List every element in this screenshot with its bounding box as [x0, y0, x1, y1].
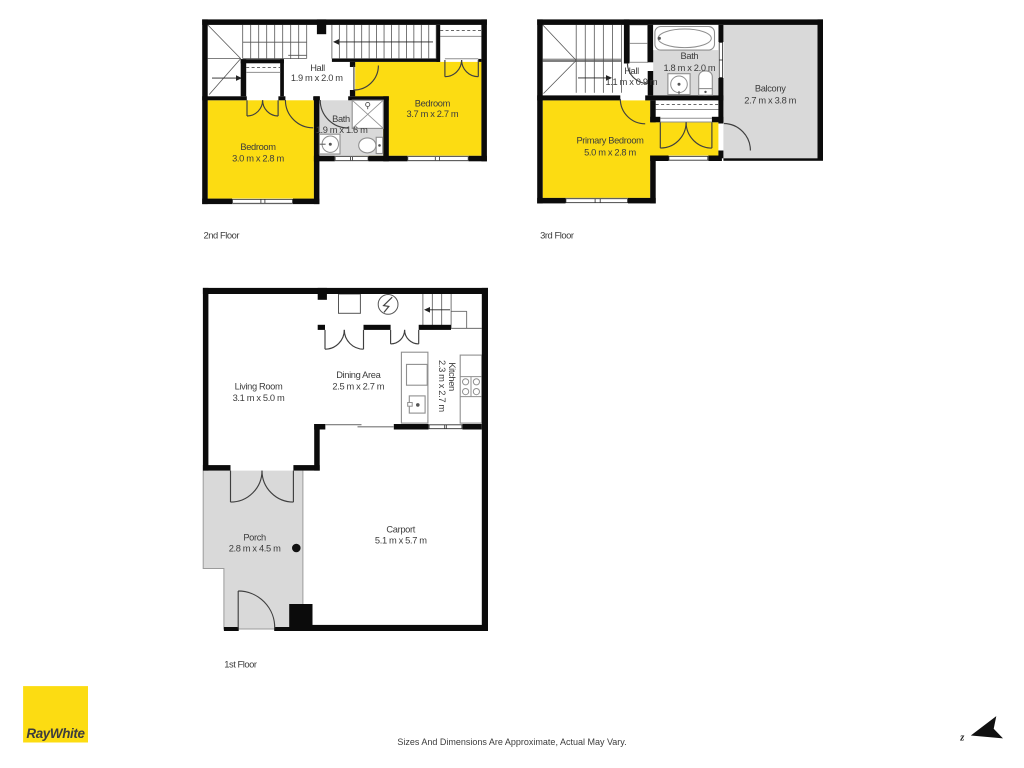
- svg-text:Primary Bedroom: Primary Bedroom: [576, 136, 644, 146]
- svg-text:Sizes And Dimensions Are Appro: Sizes And Dimensions Are Approximate, Ac…: [397, 737, 626, 747]
- svg-text:1.1 m x 0.9 m: 1.1 m x 0.9 m: [606, 77, 658, 87]
- svg-text:Bath: Bath: [332, 114, 350, 124]
- svg-text:Bedroom: Bedroom: [415, 99, 451, 109]
- svg-text:2.3 m x 2.7 m: 2.3 m x 2.7 m: [437, 360, 447, 412]
- svg-text:3.0 m x 2.8 m: 3.0 m x 2.8 m: [232, 153, 284, 163]
- svg-text:Porch: Porch: [243, 532, 266, 542]
- svg-text:2nd Floor: 2nd Floor: [204, 230, 240, 241]
- svg-text:2.8 m x 4.5 m: 2.8 m x 4.5 m: [229, 544, 281, 554]
- svg-text:Hall: Hall: [310, 63, 325, 73]
- svg-text:3.1 m x 5.0 m: 3.1 m x 5.0 m: [233, 393, 285, 403]
- svg-text:Balcony: Balcony: [755, 84, 786, 94]
- svg-text:Dining Area: Dining Area: [336, 370, 381, 380]
- svg-text:1.9 m x 1.6 m: 1.9 m x 1.6 m: [316, 125, 368, 135]
- svg-text:3.7 m x 2.7 m: 3.7 m x 2.7 m: [407, 109, 459, 119]
- svg-text:1.9 m x 2.0 m: 1.9 m x 2.0 m: [291, 73, 343, 83]
- svg-text:5.1 m x 5.7 m: 5.1 m x 5.7 m: [375, 536, 427, 546]
- svg-text:2.7 m x 3.8 m: 2.7 m x 3.8 m: [744, 96, 796, 106]
- svg-text:3rd Floor: 3rd Floor: [540, 230, 574, 241]
- svg-text:5.0 m x 2.8 m: 5.0 m x 2.8 m: [584, 148, 636, 158]
- svg-text:Hall: Hall: [624, 66, 639, 76]
- svg-text:Bedroom: Bedroom: [240, 142, 276, 152]
- svg-text:Kitchen: Kitchen: [447, 362, 457, 391]
- svg-text:Living Room: Living Room: [235, 382, 283, 392]
- svg-text:z: z: [959, 733, 965, 744]
- svg-text:Bath: Bath: [681, 51, 699, 61]
- svg-text:1.8 m x 2.0 m: 1.8 m x 2.0 m: [664, 63, 716, 73]
- svg-text:Carport: Carport: [386, 524, 415, 534]
- svg-text:2.5 m x 2.7 m: 2.5 m x 2.7 m: [332, 381, 384, 391]
- svg-text:1st Floor: 1st Floor: [224, 659, 257, 670]
- svg-text:RayWhite: RayWhite: [26, 726, 85, 741]
